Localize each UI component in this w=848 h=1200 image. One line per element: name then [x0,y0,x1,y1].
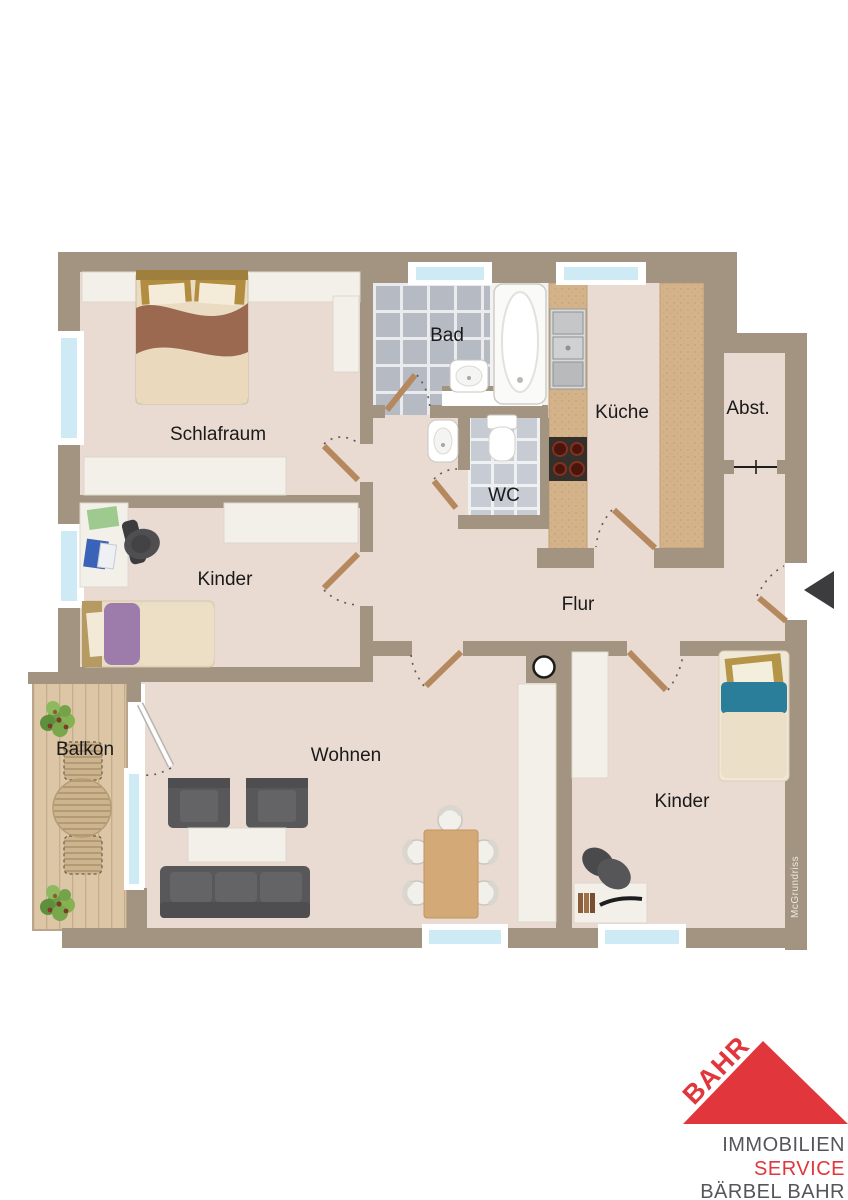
ceiling-lamp-icon [534,657,555,678]
window-bad [408,262,492,285]
dining-table [424,830,478,918]
room-label-schlafraum: Schlafraum [170,424,266,445]
coffee-table [188,828,286,862]
window-schlafraum [54,331,84,445]
room-label-abst: Abst. [726,398,769,419]
entrance-arrow-icon [804,571,834,609]
wall-kinder1-east [360,606,373,667]
wall-kueche-east [704,283,724,568]
sink-vestibule-icon [428,420,458,462]
double-bed [136,270,248,404]
wall-wc-west [458,418,470,470]
floorplan-svg: Schlafraum Bad WC Küche Abst. Flur Kinde… [0,0,848,1200]
wardrobe-kinder1 [224,503,358,543]
logo-line1: IMMOBILIEN [722,1134,845,1156]
agency-logo: BAHR IMMOBILIEN SERVICE BÄRBEL BAHR [677,1030,848,1200]
wall-bad-south-a [373,405,385,418]
wall-left [58,252,80,682]
room-label-kinder1: Kinder [198,569,254,590]
room-label-wc: WC [488,485,520,506]
room-label-kinder2: Kinder [655,791,711,812]
wardrobe-wohnen [518,684,556,922]
wall-right-upper [785,333,807,563]
toilet-icon [487,415,517,461]
room-label-balkon: Balkon [56,739,114,760]
wall-balkon-top [28,672,128,684]
stove-icon [549,437,587,481]
kitchen-sink-icon [550,309,586,389]
desk-kinder2 [574,883,647,923]
room-label-wohnen: Wohnen [311,745,381,766]
room-label-kueche: Küche [595,402,649,423]
floorplan-page: Schlafraum Bad WC Küche Abst. Flur Kinde… [0,0,848,1200]
wall-wohnen-west-a [127,682,141,702]
wall-flur-south-a [360,641,412,656]
window-balkon-door [124,768,144,890]
balcony-table [53,779,111,837]
wall-schlafraum-east-b [360,482,373,552]
room-label-flur: Flur [562,594,595,615]
wall-wc-east [540,418,549,522]
dining-chair [438,808,462,832]
wall-wc-south [458,515,549,529]
wall-wohnen-kinder2 [556,652,572,930]
room-label-bad: Bad [430,325,464,346]
bed-kinder2 [719,651,789,781]
wall-top-left [58,252,373,272]
sideboard-south [84,457,286,495]
bathtub-icon [494,284,546,404]
watermark-text: McGrundriss [790,856,801,918]
wall-kueche-stub-east [654,548,704,568]
balcony-chair [64,836,102,874]
sofa [160,866,310,918]
window-kueche [556,262,646,285]
armchair-left [168,778,230,828]
kitchen-counter-east [660,283,704,548]
window-wohnen [422,924,508,950]
logo-line2: SERVICE [754,1158,845,1180]
wall-abst-stub-left [724,460,734,474]
wall-kueche-stub-west [537,548,594,568]
column-cabinet [333,296,359,372]
window-kinder2 [598,924,686,950]
desk-kinder1 [80,503,128,587]
wall-wohnen-west-b [127,888,147,928]
logo-line3: BÄRBEL BAHR [700,1181,845,1200]
wardrobe-kinder2 [572,652,608,778]
wall-schlafraum-east-a [360,272,373,444]
armchair-right [246,778,308,828]
sink-bad-icon [450,360,488,392]
bed-kinder1 [82,601,214,667]
wall-abst-stub-right [777,460,787,474]
